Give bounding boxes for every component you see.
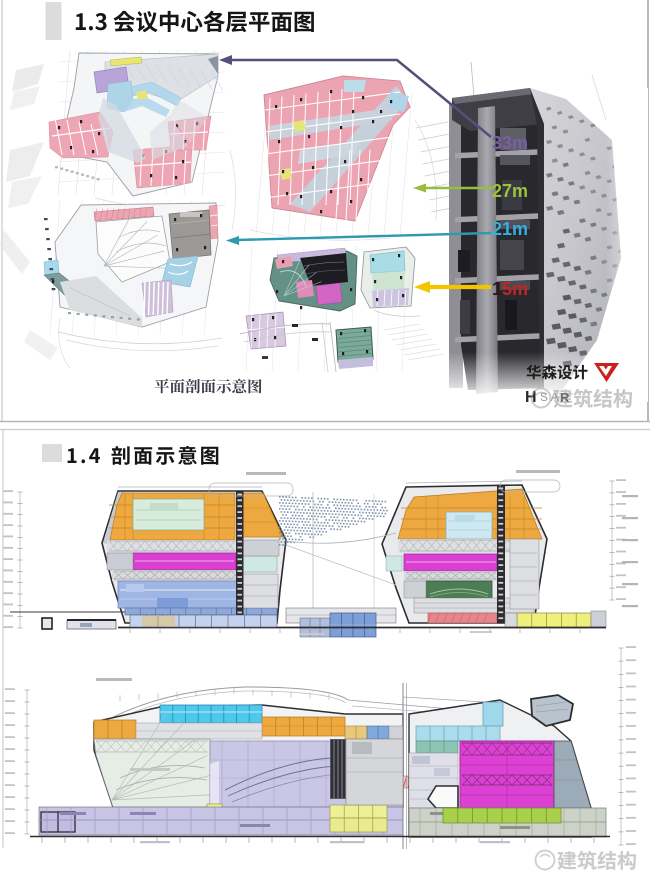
svg-text:33m: 33m bbox=[492, 133, 528, 153]
svg-text:5m: 5m bbox=[502, 279, 528, 299]
svg-text:21m: 21m bbox=[492, 219, 528, 239]
svg-text:27m: 27m bbox=[492, 181, 528, 201]
svg-text:1: 1 bbox=[492, 279, 502, 299]
